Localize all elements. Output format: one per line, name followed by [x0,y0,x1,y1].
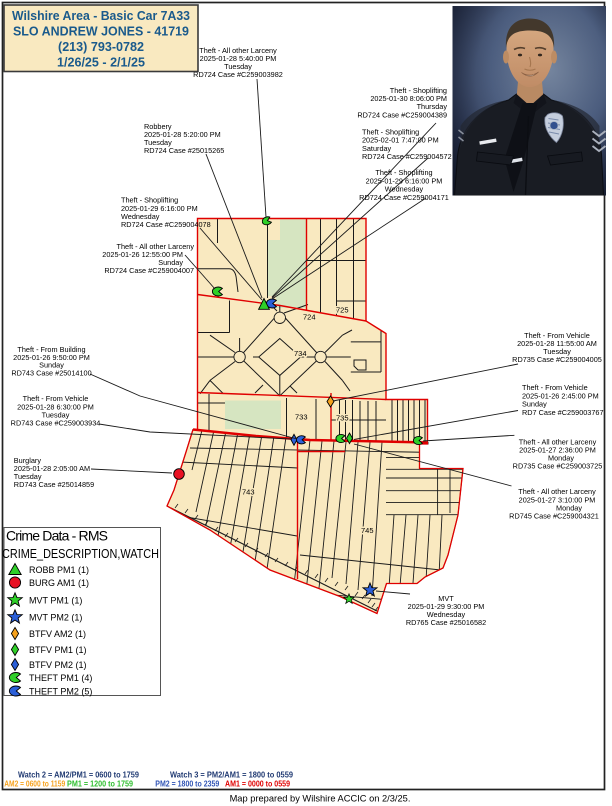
svg-text:735: 735 [336,414,349,423]
svg-text:Crime Data - RMS: Crime Data - RMS [6,528,108,544]
svg-text:Theft - All other Larceny2025-: Theft - All other Larceny2025-01-26 12:5… [102,242,194,275]
svg-text:1/26/25 - 2/1/25: 1/26/25 - 2/1/25 [57,55,145,70]
svg-text:Theft - All other Larceny2025-: Theft - All other Larceny2025-01-27 3:10… [509,487,599,520]
svg-text:MVT PM2 (1): MVT PM2 (1) [29,613,82,623]
svg-text:Wilshire Area - Basic Car 7A33: Wilshire Area - Basic Car 7A33 [12,8,190,23]
svg-text:733: 733 [295,413,308,422]
svg-text:Theft - From Vehicle2025-01-28: Theft - From Vehicle2025-01-28 6:30:00 P… [11,394,101,427]
svg-text:THEFT PM1 (4): THEFT PM1 (4) [29,673,92,683]
svg-text:(213) 793-0782: (213) 793-0782 [58,39,144,54]
svg-text:734: 734 [294,349,307,358]
svg-text:BTFV AM2 (1): BTFV AM2 (1) [29,629,86,639]
svg-text:Theft - All other Larceny2025-: Theft - All other Larceny2025-01-28 5:40… [193,46,283,79]
svg-text:AM1 = 0000 to 0559: AM1 = 0000 to 0559 [225,779,290,789]
svg-text:ROBB PM1 (1): ROBB PM1 (1) [29,565,89,575]
svg-text:BTFV PM2 (1): BTFV PM2 (1) [29,660,87,670]
svg-text:BTFV PM1 (1): BTFV PM1 (1) [29,645,87,655]
svg-text:Theft - All other Larceny2025-: Theft - All other Larceny2025-01-27 2:36… [513,438,603,471]
svg-text:724: 724 [303,313,316,322]
svg-text:Theft - From Vehicle2025-01-28: Theft - From Vehicle2025-01-28 11:55:00 … [512,331,602,364]
svg-text:743: 743 [242,488,255,497]
svg-text:AM2 = 0600 to 1159: AM2 = 0600 to 1159 [4,779,65,789]
svg-text:Theft - From Building2025-01-2: Theft - From Building2025-01-26 9:50:00 … [11,345,91,378]
svg-text:MVT PM1 (1): MVT PM1 (1) [29,596,82,606]
svg-text:PM2 = 1800 to 2359: PM2 = 1800 to 2359 [155,779,219,789]
svg-text:Map prepared by Wilshire ACCIC: Map prepared by Wilshire ACCIC on 2/3/25… [230,794,411,804]
svg-text:THEFT PM2 (5): THEFT PM2 (5) [29,687,92,697]
svg-text:725: 725 [336,306,349,315]
svg-text:PM1 = 1200 to 1759: PM1 = 1200 to 1759 [67,779,133,789]
svg-text:745: 745 [361,526,374,535]
svg-text:CRIME_DESCRIPTION,WATCH: CRIME_DESCRIPTION,WATCH [2,546,159,561]
svg-text:BURG AM1 (1): BURG AM1 (1) [29,578,89,588]
svg-text:SLO ANDREW JONES - 41719: SLO ANDREW JONES - 41719 [13,24,189,39]
